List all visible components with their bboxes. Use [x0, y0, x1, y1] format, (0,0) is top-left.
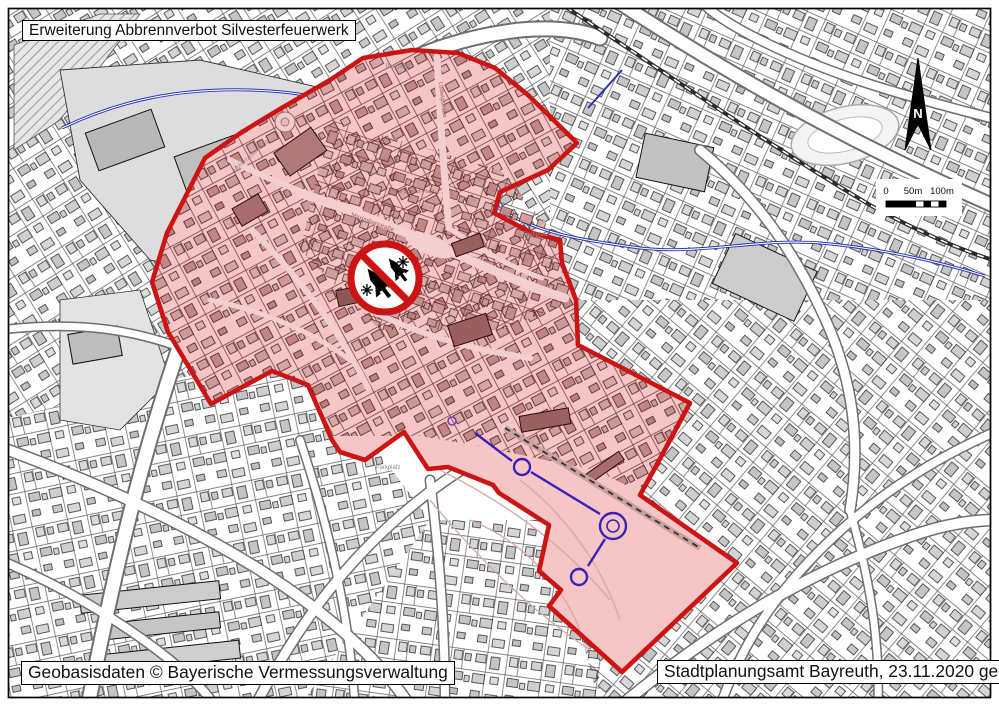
- scale-100: 100m: [930, 186, 954, 197]
- map-label: La-Spezia-Platz: [396, 189, 435, 195]
- scale-0: 0: [883, 186, 888, 197]
- geodata-credit-box: Geobasisdaten © Bayerische Vermessungsve…: [21, 661, 455, 685]
- source-date-box: Stadtplanungsamt Bayreuth, 23.11.2020 ge: [657, 660, 999, 684]
- map-title-box: Erweiterung Abbrennverbot Silvesterfeuer…: [22, 20, 356, 41]
- scale-bar: 0 50m 100m: [876, 179, 962, 216]
- roundabout: [275, 112, 295, 132]
- map-label: Parkplatz: [385, 64, 410, 70]
- map-label: Parkplatz: [375, 465, 400, 471]
- map-sheet: HohenzollernringParkplatzParkplatzParkpl…: [0, 0, 999, 706]
- map-label: Parkplatz: [523, 232, 548, 238]
- scale-50: 50m: [904, 186, 923, 197]
- no-fireworks-icon: [351, 244, 419, 312]
- city-map-svg: HohenzollernringParkplatzParkplatzParkpl…: [0, 0, 999, 706]
- north-label: N: [913, 106, 922, 121]
- map-label: Kirchplatz: [326, 290, 350, 296]
